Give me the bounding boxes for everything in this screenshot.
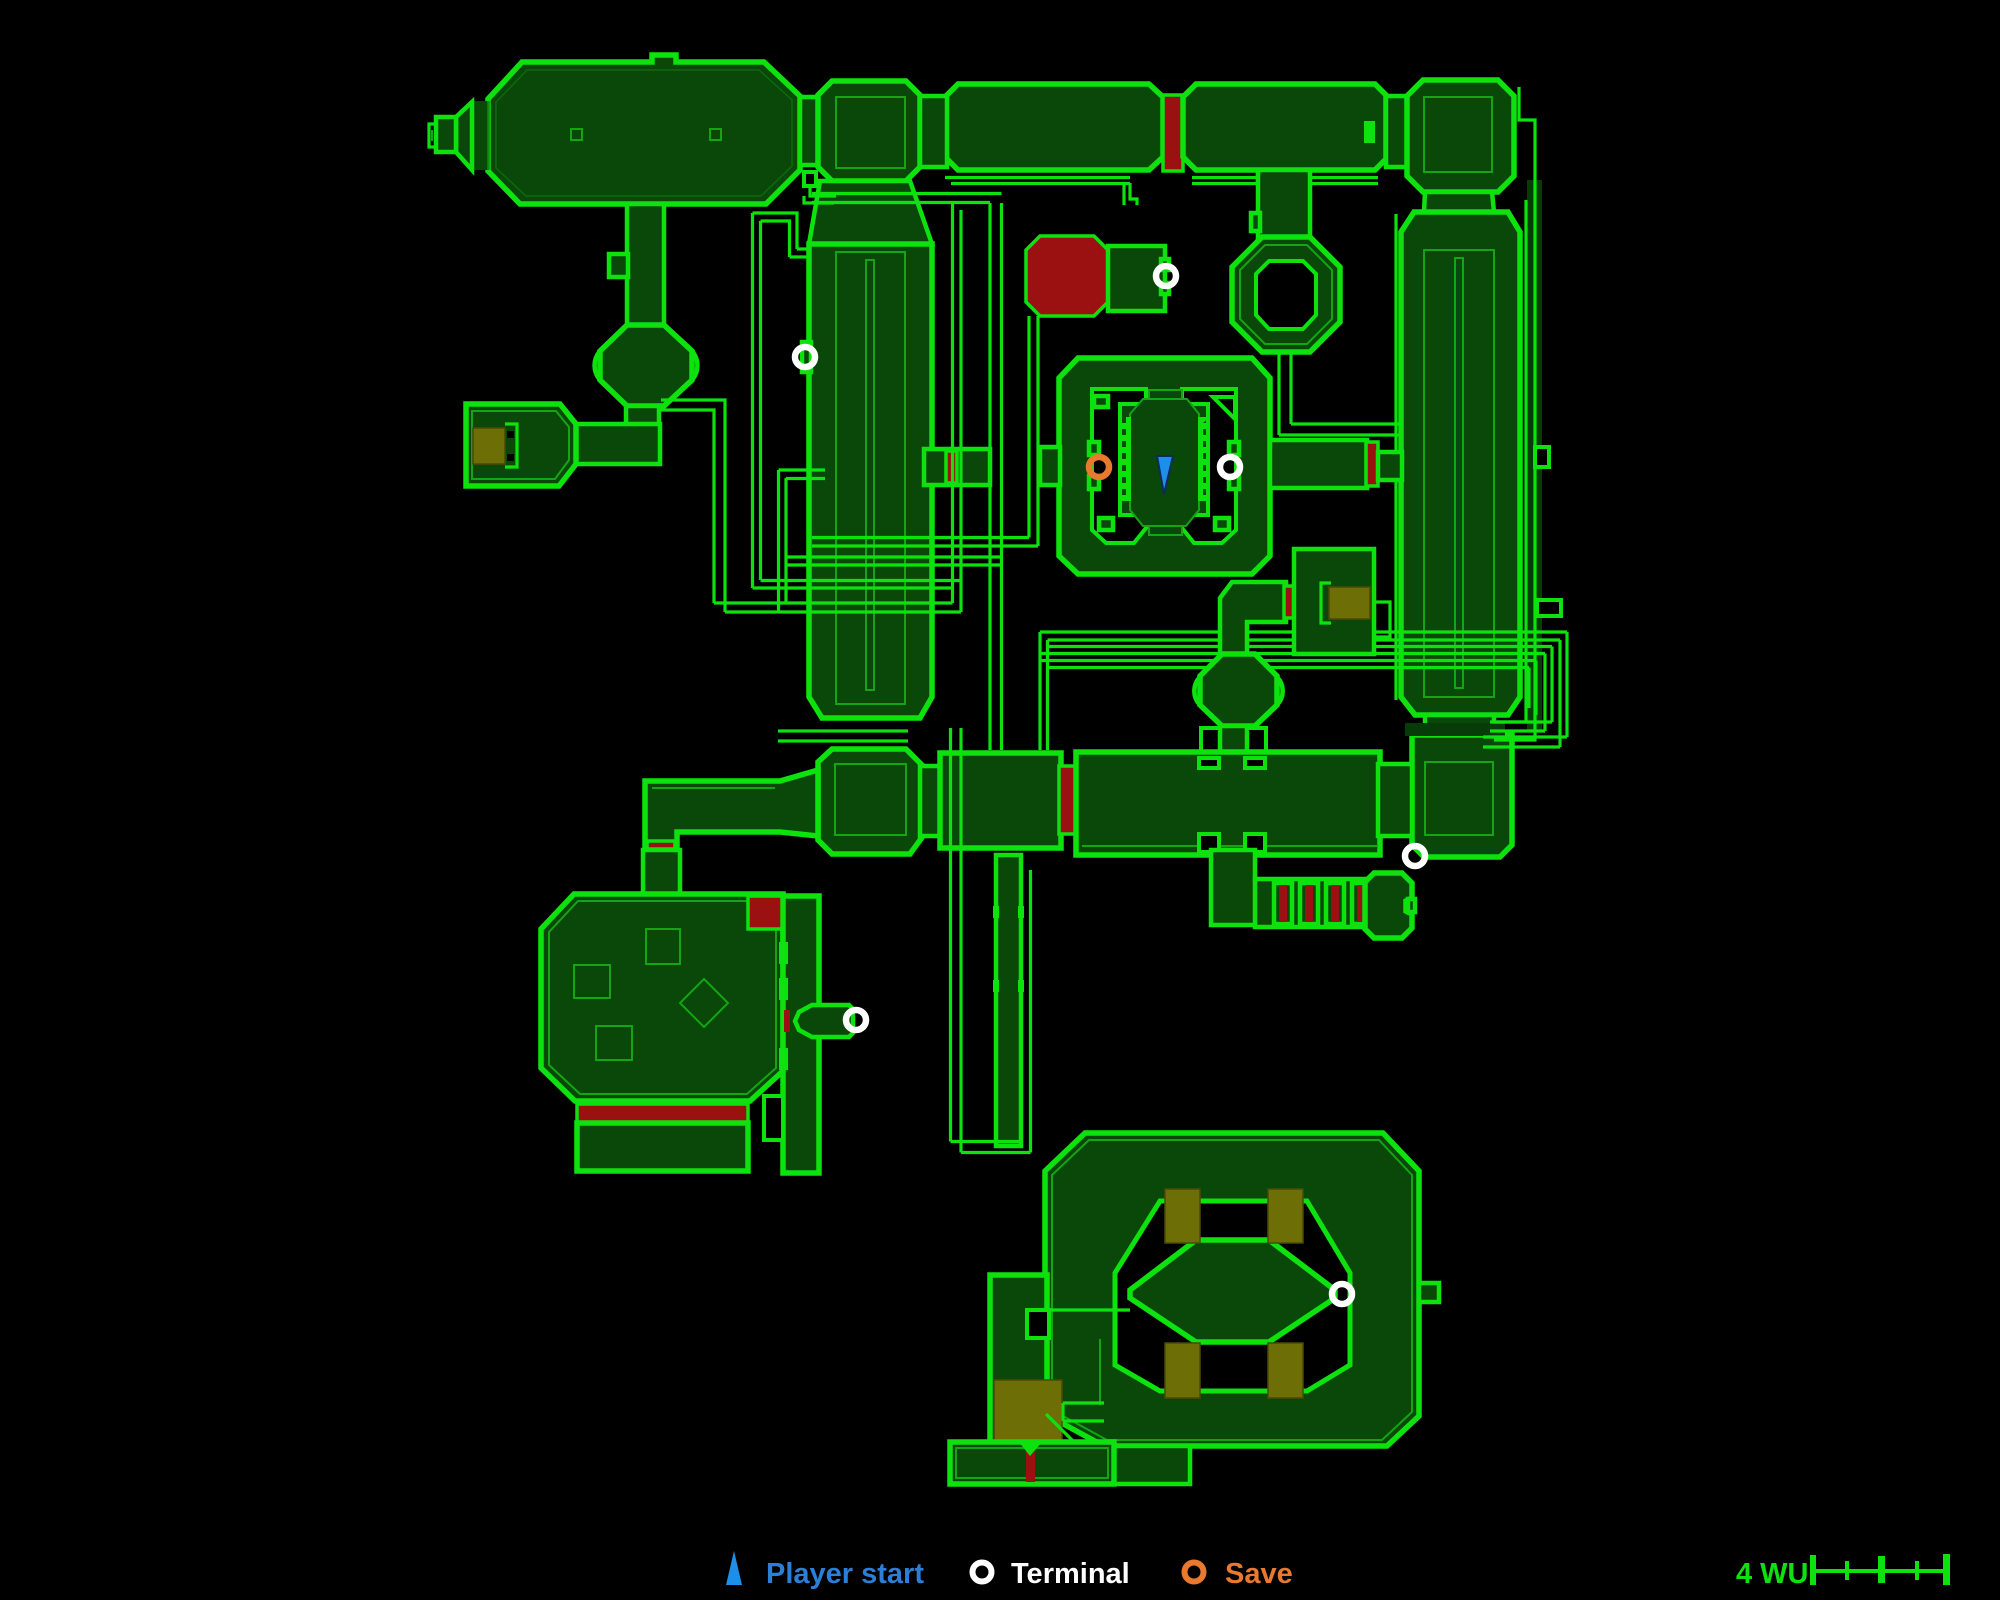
- svg-text:Save: Save: [1225, 1558, 1293, 1590]
- svg-text:4 WU: 4 WU: [1736, 1558, 1809, 1590]
- svg-text:Player start: Player start: [766, 1558, 924, 1590]
- svg-text:Terminal: Terminal: [1011, 1558, 1130, 1590]
